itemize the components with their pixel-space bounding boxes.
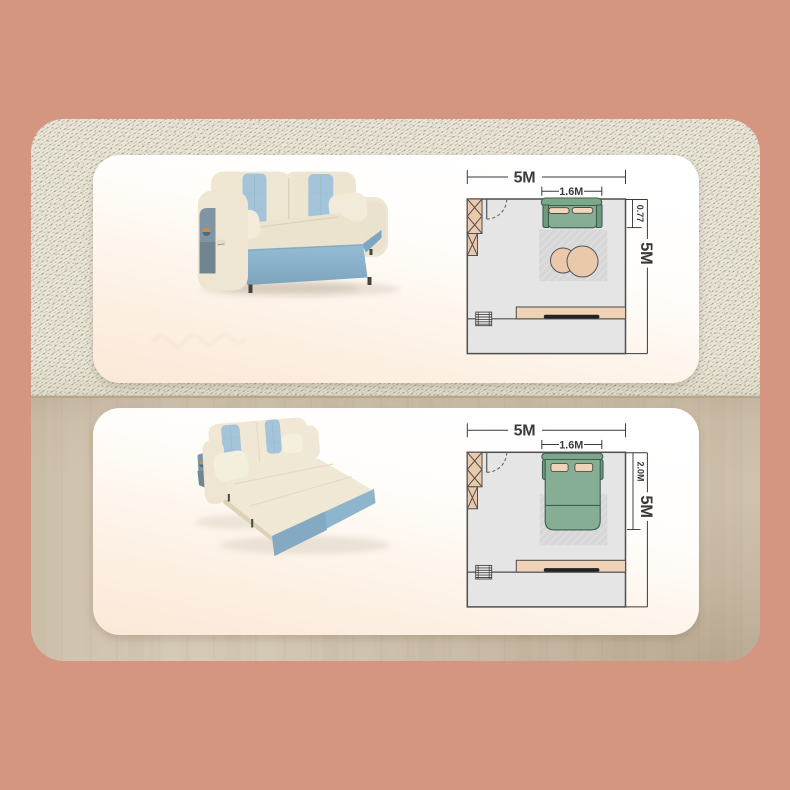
- svg-text:0.77: 0.77: [635, 205, 645, 223]
- svg-text:2.0M: 2.0M: [635, 461, 645, 481]
